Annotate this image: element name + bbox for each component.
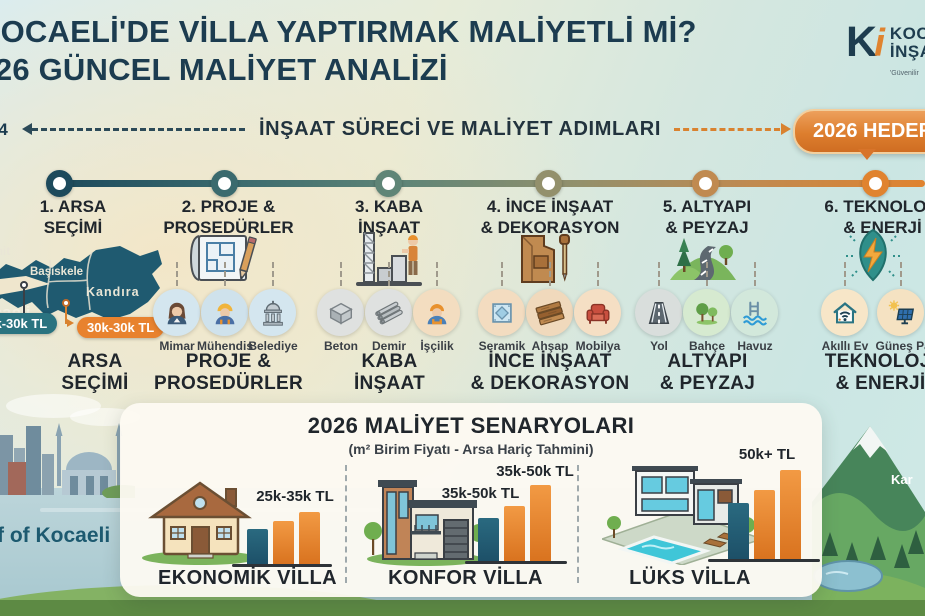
bar [754, 490, 775, 559]
bar [530, 485, 551, 561]
mountain-label: Kar [891, 472, 913, 487]
rebar-icon [365, 289, 412, 336]
step-3-title: KABAİNŞAAT [312, 351, 467, 395]
engineer-icon [201, 289, 248, 336]
map-pin-west [20, 281, 28, 289]
chart-baseline [708, 559, 820, 562]
map-label-kandira: Kandıra [86, 285, 140, 299]
company-logo: Ki KOCAELİ İNŞAAT 'Güvenilir [846, 22, 925, 83]
timeline-node-5 [692, 170, 719, 197]
connector-dash [224, 262, 226, 286]
target-year-badge: 2026 HEDEFİ [793, 109, 925, 154]
bar [504, 506, 525, 561]
timeline-bar [58, 180, 925, 187]
furniture-icon [574, 289, 621, 336]
connector-dash [597, 262, 599, 286]
timeline-start-year: 2024 [0, 120, 8, 140]
road-landscape-icon [668, 226, 740, 284]
timeline-node-6 [862, 170, 889, 197]
bar [273, 521, 294, 564]
bar [728, 503, 749, 559]
price-label: 25k-35k TL [240, 488, 350, 505]
energy-leaf-icon [844, 226, 902, 286]
infographic-canvas: Gulf of Kocaeli Kar KOCAELİ'DE VİLLA YAP… [0, 0, 925, 616]
city-skyline-illustration [0, 410, 135, 498]
map-label-izmit: İzmit [0, 246, 10, 258]
connector-dash [176, 262, 178, 286]
connector-dash [754, 262, 756, 286]
gulf-label: Gulf of Kocaeli [0, 524, 110, 548]
connector-dash [436, 262, 438, 286]
architect-icon [153, 289, 200, 336]
bar [780, 470, 801, 559]
step-2-title: PROJE &PROSEDÜRLER [141, 351, 316, 395]
dashed-line-right [674, 128, 780, 131]
connector-dash [900, 262, 902, 286]
concrete-icon [317, 289, 364, 336]
timeline-center-label: İNŞAAT SÜRECİ VE MALİYET ADIMLARI [250, 118, 670, 141]
connector-dash [706, 262, 708, 286]
main-title-line1: KOCAELİ'DE VİLLA YAPTIRMAK MALİYETLİ Mİ? [0, 14, 697, 50]
arrow-right-icon [781, 123, 791, 135]
carpentry-icon [514, 230, 582, 286]
logo-mark: Ki [846, 22, 885, 66]
chart-baseline [465, 561, 567, 564]
divider [345, 465, 347, 583]
pin-arrow-east [67, 319, 74, 327]
timeline-node-2 [211, 170, 238, 197]
ground-band [0, 600, 925, 616]
garden-icon [683, 289, 730, 336]
land-price-badge-west: 20k-30k TL [0, 313, 57, 334]
divider [577, 465, 579, 583]
solar-panel-icon [877, 289, 924, 336]
connector-dash [388, 262, 390, 286]
comfort-villa-chart [478, 479, 551, 561]
connector-dash [549, 262, 551, 286]
pin-connector-west [23, 289, 25, 313]
timeline-node-1 [46, 170, 73, 197]
comfort-villa-icon [363, 465, 488, 567]
connector-dash [844, 262, 846, 286]
blueprint-icon [186, 230, 260, 286]
logo-name-line1: KOCAELİ [890, 25, 925, 43]
smart-home-icon [821, 289, 868, 336]
ceramic-tile-icon [478, 289, 525, 336]
connector-dash [340, 262, 342, 286]
price-label: 50k+ TL [713, 446, 821, 463]
main-title-line2: 2026 GÜNCEL MALİYET ANALİZİ [0, 52, 448, 88]
villa-name: KONFOR VİLLA [388, 567, 543, 590]
bar [478, 518, 499, 561]
connector-dash [658, 262, 660, 286]
arrow-left-icon [22, 123, 32, 135]
logo-mark-k: K [846, 18, 877, 66]
timeline-node-4 [535, 170, 562, 197]
step-5-title: ALTYAPI& PEYZAJ [630, 351, 785, 395]
economy-villa-chart [247, 504, 320, 564]
step-6-title: TEKNOLOJİ& ENERJİ [803, 351, 925, 395]
connector-dash [272, 262, 274, 286]
scenarios-title: 2026 MALİYET SENARYOLARI [120, 413, 822, 439]
villa-name: LÜKS VİLLA [614, 567, 766, 590]
logo-name-line2: İNŞAAT [890, 43, 925, 61]
logo-tagline: 'Güvenilir [890, 65, 925, 83]
luxury-villa-chart [728, 463, 801, 559]
road-icon [635, 289, 682, 336]
logo-text: KOCAELİ İNŞAAT 'Güvenilir [890, 22, 925, 83]
timeline-node-3 [375, 170, 402, 197]
mountains-illustration [812, 424, 925, 616]
pool-icon [731, 289, 778, 336]
municipality-icon [249, 289, 296, 336]
bar [299, 512, 320, 564]
price-label: 35k-50k TL [480, 463, 590, 480]
wood-planks-icon [526, 289, 573, 336]
villa-name: EKONOMİK VİLLA [158, 567, 323, 590]
logo-mark-i: i [874, 22, 885, 65]
badge-tail [858, 149, 876, 160]
connector-dash [501, 262, 503, 286]
step-4-title: İNCE İNŞAAT& DEKORASYON [460, 351, 640, 395]
dashed-line-left [32, 128, 245, 131]
bar [247, 529, 268, 564]
land-price-badge-east: 30k-30k TL [77, 317, 164, 338]
cost-scenarios-card: 2026 MALİYET SENARYOLARI (m² Birim Fiyat… [120, 403, 822, 597]
map-label-basiskele: Başiskele [30, 266, 83, 278]
labor-icon [413, 289, 460, 336]
